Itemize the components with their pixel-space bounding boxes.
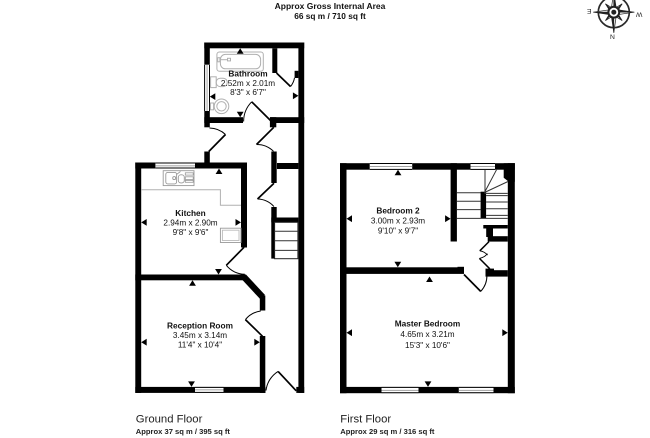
svg-text:N: N <box>610 33 615 40</box>
svg-text:Bedroom 2: Bedroom 2 <box>376 206 420 216</box>
svg-text:4.65m x 3.21m: 4.65m x 3.21m <box>400 330 454 339</box>
svg-text:11'4" x 10'4": 11'4" x 10'4" <box>178 341 222 350</box>
svg-text:Approx Gross Internal Area: Approx Gross Internal Area <box>275 1 386 11</box>
svg-text:66 sq m / 710 sq ft: 66 sq m / 710 sq ft <box>294 11 366 21</box>
svg-text:3.00m x 2.93m: 3.00m x 2.93m <box>371 216 425 225</box>
svg-text:W: W <box>635 11 642 18</box>
svg-text:3.45m x 3.14m: 3.45m x 3.14m <box>173 331 227 340</box>
svg-text:Ground Floor: Ground Floor <box>136 413 203 425</box>
svg-text:2.52m x 2.01m: 2.52m x 2.01m <box>221 79 275 88</box>
svg-text:2.94m x 2.90m: 2.94m x 2.90m <box>163 219 217 228</box>
svg-text:E: E <box>586 7 591 14</box>
svg-text:8'3" x 6'7": 8'3" x 6'7" <box>230 88 266 97</box>
svg-text:First Floor: First Floor <box>340 413 391 425</box>
svg-text:Bathroom: Bathroom <box>228 69 267 79</box>
svg-text:9'10" x 9'7": 9'10" x 9'7" <box>378 226 418 235</box>
svg-text:15'3" x 10'6": 15'3" x 10'6" <box>405 341 450 350</box>
svg-text:Reception Room: Reception Room <box>167 321 233 331</box>
svg-text:Master Bedroom: Master Bedroom <box>395 318 460 328</box>
svg-text:Kitchen: Kitchen <box>175 208 205 218</box>
svg-text:9'8" x 9'6": 9'8" x 9'6" <box>173 228 209 237</box>
svg-text:Approx 29 sq m / 316 sq ft: Approx 29 sq m / 316 sq ft <box>340 427 435 436</box>
svg-text:Approx 37 sq m / 395 sq ft: Approx 37 sq m / 395 sq ft <box>136 427 231 436</box>
